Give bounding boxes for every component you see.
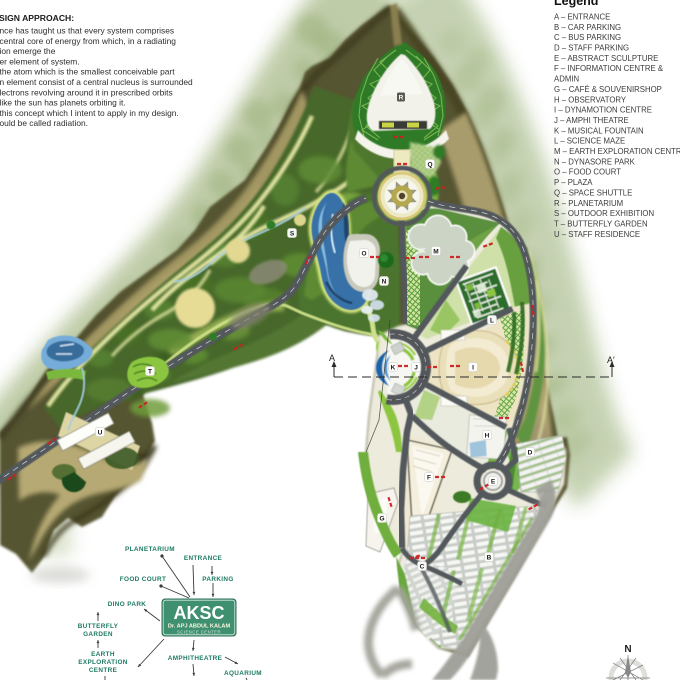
svg-text:I: I [472,364,474,371]
svg-text:N: N [624,644,631,655]
svg-text:U: U [98,429,103,436]
svg-text:FOOD COURT: FOOD COURT [120,576,166,583]
svg-text:O – FOOD COURT: O – FOOD COURT [554,168,621,177]
svg-text:P: P [399,192,404,201]
svg-text:SIGN APPROACH:: SIGN APPROACH: [0,13,74,23]
svg-text:O: O [361,250,366,257]
svg-text:I – DYNAMOTION CENTRE: I – DYNAMOTION CENTRE [554,106,652,115]
svg-text:L: L [490,317,494,324]
svg-text:U – STAFF RESIDENCE: U – STAFF RESIDENCE [554,230,640,239]
svg-text:A – ENTRANCE: A – ENTRANCE [554,13,610,22]
svg-text:nce has taught us that every s: nce has taught us that every system comp… [0,26,174,36]
svg-text:J – AMPHI THEATRE: J – AMPHI THEATRE [554,116,629,125]
svg-text:Q: Q [427,161,432,168]
svg-text:F – INFORMATION CENTRE &: F – INFORMATION CENTRE & [554,64,664,73]
svg-text:DINO PARK: DINO PARK [108,601,147,608]
svg-text:BUTTERFLY: BUTTERFLY [78,623,119,630]
svg-text:D: D [528,449,533,456]
svg-text:D – STAFF PARKING: D – STAFF PARKING [554,44,629,53]
svg-text:Legend: Legend [554,0,598,8]
svg-text:E – ABSTRACT SCULPTURE: E – ABSTRACT SCULPTURE [554,54,658,63]
svg-text:T: T [148,368,152,375]
svg-text:ion emerge the: ion emerge the [0,46,56,56]
svg-text:AKSC: AKSC [173,603,224,623]
svg-text:AMPHITHEATRE: AMPHITHEATRE [168,655,223,662]
svg-text:n element consist of a central: n element consist of a central nucleus i… [0,77,193,87]
svg-text:C – BUS PARKING: C – BUS PARKING [554,33,621,42]
svg-text:ADMIN: ADMIN [554,75,579,84]
svg-text:like the sun has planets orbit: like the sun has planets orbiting it. [0,98,126,108]
svg-text:SCIENCE CENTER: SCIENCE CENTER [177,630,221,635]
svg-text:J: J [414,364,418,371]
svg-text:ENTRANCE: ENTRANCE [184,555,223,562]
svg-text:H: H [485,432,490,439]
svg-text:B: B [487,554,492,561]
svg-text:F: F [427,474,431,481]
svg-text:N – DYNASORE PARK: N – DYNASORE PARK [554,157,636,166]
svg-text:G – CAFÉ & SOUVENIRSHOP: G – CAFÉ & SOUVENIRSHOP [554,85,662,94]
svg-text:EXPLORATION: EXPLORATION [78,659,128,666]
svg-text:PLANETARIUM: PLANETARIUM [125,546,175,553]
svg-text:ould be called radiation.: ould be called radiation. [0,118,88,128]
svg-text:PARKING: PARKING [202,576,233,583]
svg-text:M: M [433,248,438,255]
svg-text:this concept which I intent to: this concept which I intent to apply in … [0,108,179,118]
svg-text:CENTRE: CENTRE [89,667,118,674]
svg-text:lectrons revolving around it i: lectrons revolving around it in prescrib… [0,87,173,97]
svg-text:K – MUSICAL FOUNTAIN: K – MUSICAL FOUNTAIN [554,126,644,135]
svg-text:AQUARIUM: AQUARIUM [224,670,262,677]
svg-text:central core of energy from wh: central core of energy from which, in a … [0,36,176,46]
svg-text:R: R [399,95,404,102]
svg-text:E: E [491,478,496,485]
svg-text:G: G [379,515,384,522]
svg-text:GARDEN: GARDEN [83,631,113,638]
svg-text:K: K [391,364,396,371]
svg-text:A: A [329,353,335,363]
svg-text:er element of system.: er element of system. [0,56,80,66]
svg-text:B – CAR PARKING: B – CAR PARKING [554,23,621,32]
svg-text:EARTH: EARTH [91,651,115,658]
svg-text:Q – SPACE SHUTTLE: Q – SPACE SHUTTLE [554,188,632,197]
svg-text:M – EARTH EXPLORATION CENTRE: M – EARTH EXPLORATION CENTRE [554,147,680,156]
svg-text:A′: A′ [607,355,615,365]
svg-text:S – OUTDOOR EXHIBITION: S – OUTDOOR EXHIBITION [554,209,654,218]
svg-text:H – OBSERVATORY: H – OBSERVATORY [554,95,627,104]
svg-text:C: C [420,563,425,570]
svg-text:S: S [290,230,295,237]
svg-text:N: N [382,278,387,285]
svg-text:R – PLANETARIUM: R – PLANETARIUM [554,199,623,208]
svg-text:T – BUTTERFLY GARDEN: T – BUTTERFLY GARDEN [554,220,648,229]
svg-text:L – SCIENCE MAZE: L – SCIENCE MAZE [554,137,625,146]
svg-text:P – PLAZA: P – PLAZA [554,178,593,187]
svg-text:the atom which is the smallest: the atom which is the smallest conceivab… [0,67,175,77]
